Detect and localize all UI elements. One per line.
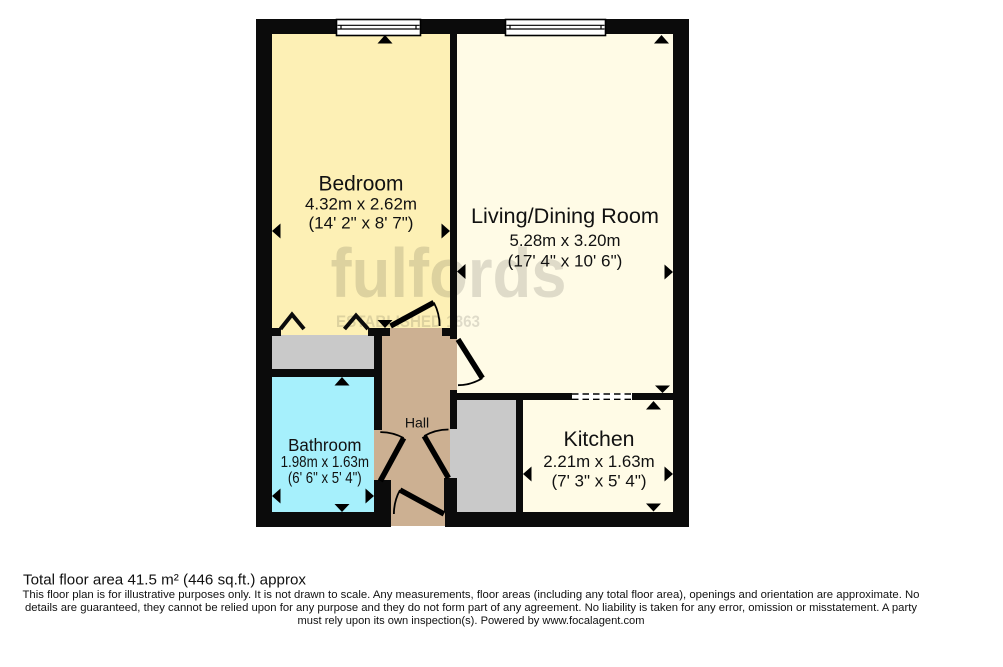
svg-text:(6' 6" x 5' 4"): (6' 6" x 5' 4"): [288, 470, 362, 487]
svg-text:(7' 3" x 5' 4"): (7' 3" x 5' 4"): [552, 472, 647, 491]
svg-text:This floor plan is for illustr: This floor plan is for illustrative purp…: [23, 589, 920, 601]
svg-text:details are guaranteed, they c: details are guaranteed, they cannot be r…: [25, 602, 917, 614]
svg-text:Kitchen: Kitchen: [564, 427, 635, 451]
svg-text:Living/Dining Room: Living/Dining Room: [471, 204, 659, 228]
svg-text:must rely upon its own inspect: must rely upon its own inspection(s). Po…: [298, 615, 645, 627]
svg-text:Bathroom: Bathroom: [288, 435, 361, 455]
svg-text:(17' 4" x 10' 6"): (17' 4" x 10' 6"): [508, 252, 623, 271]
svg-text:2.21m x 1.63m: 2.21m x 1.63m: [543, 452, 654, 471]
svg-text:Hall: Hall: [405, 416, 429, 431]
svg-text:5.28m x 3.20m: 5.28m x 3.20m: [510, 231, 621, 250]
svg-text:4.32m x 2.62m: 4.32m x 2.62m: [305, 195, 417, 214]
svg-text:Bedroom: Bedroom: [319, 172, 404, 196]
svg-text:1.98m x 1.63m: 1.98m x 1.63m: [281, 454, 369, 471]
svg-text:Total floor area 41.5 m² (446: Total floor area 41.5 m² (446 sq.ft.) ap…: [23, 572, 307, 589]
svg-text:(14' 2" x 8' 7"): (14' 2" x 8' 7"): [309, 214, 414, 233]
